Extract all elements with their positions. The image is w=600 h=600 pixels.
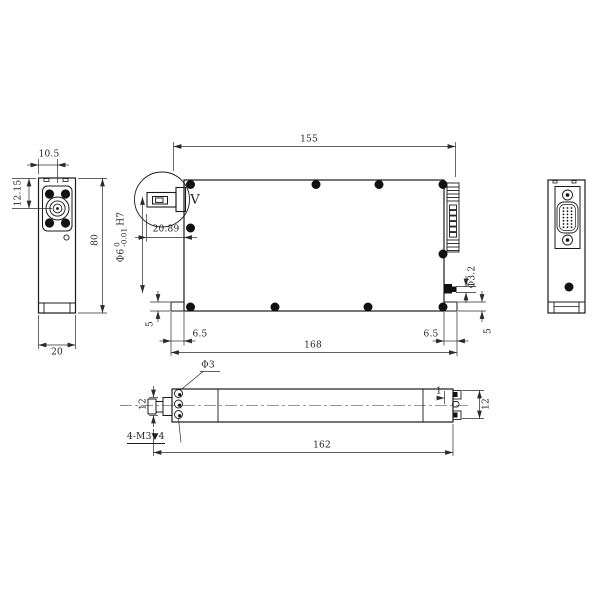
aperture-prefix: Φ6 [118,249,127,263]
bottom-screw-holes [175,390,183,419]
dsub-connector [555,187,580,249]
dim-left-top-width: 10.5 [39,151,60,160]
side-hole [565,283,574,292]
bottom-view [120,389,468,422]
right-side-view [548,180,585,313]
aperture-fit-class: H7 [118,212,127,226]
dim-flange-offset-left: 6.5 [193,331,208,340]
dim-hole-diameter: Φ3 [201,362,215,371]
drawing-geometry [0,0,600,600]
dim-bottom-length: 162 [313,442,331,451]
dim-stud-diameter: Φ3.2 [469,266,478,289]
rear-bumps [453,391,462,420]
dim-flange-width: 168 [304,342,322,351]
dim-aperture-offset: 20.89 [153,226,180,235]
dim-body-height: 80 [92,234,101,246]
main-front-view [135,172,460,312]
aperture-tolerance-lower: -0.01 [122,228,129,247]
dim-nozzle-height: 12 [140,398,149,410]
mechanical-drawing-canvas: 10.5 12.15 20 80 155 20.89 Φ6 0 -0.01 H7… [0,0,600,600]
thread-depth-note: 4-M3▼4 [127,433,165,444]
screw-holes [186,180,448,312]
dsub-pins [563,207,573,228]
dim-right-slot-height: 12 [483,398,492,410]
output-nozzle [148,398,172,416]
dim-flange-offset-right: 6.5 [424,331,439,340]
dim-foot-height-left: 5 [147,321,156,327]
left-side-view [39,178,76,313]
dim-aperture-diameter: Φ6 0 -0.01 H7 [115,212,130,262]
dimension-lines [12,142,486,456]
fiber-port-connector [43,186,73,240]
detail-view-label: V [190,194,200,207]
dim-left-depth: 20 [51,349,63,358]
side-connector-fins [447,183,459,252]
dim-bump-offset: 1 [436,388,442,397]
dim-top-width: 155 [300,136,318,145]
dim-left-port-offset: 12.15 [15,180,24,207]
side-stud [444,284,457,294]
dim-foot-height-right: 5 [485,328,494,334]
